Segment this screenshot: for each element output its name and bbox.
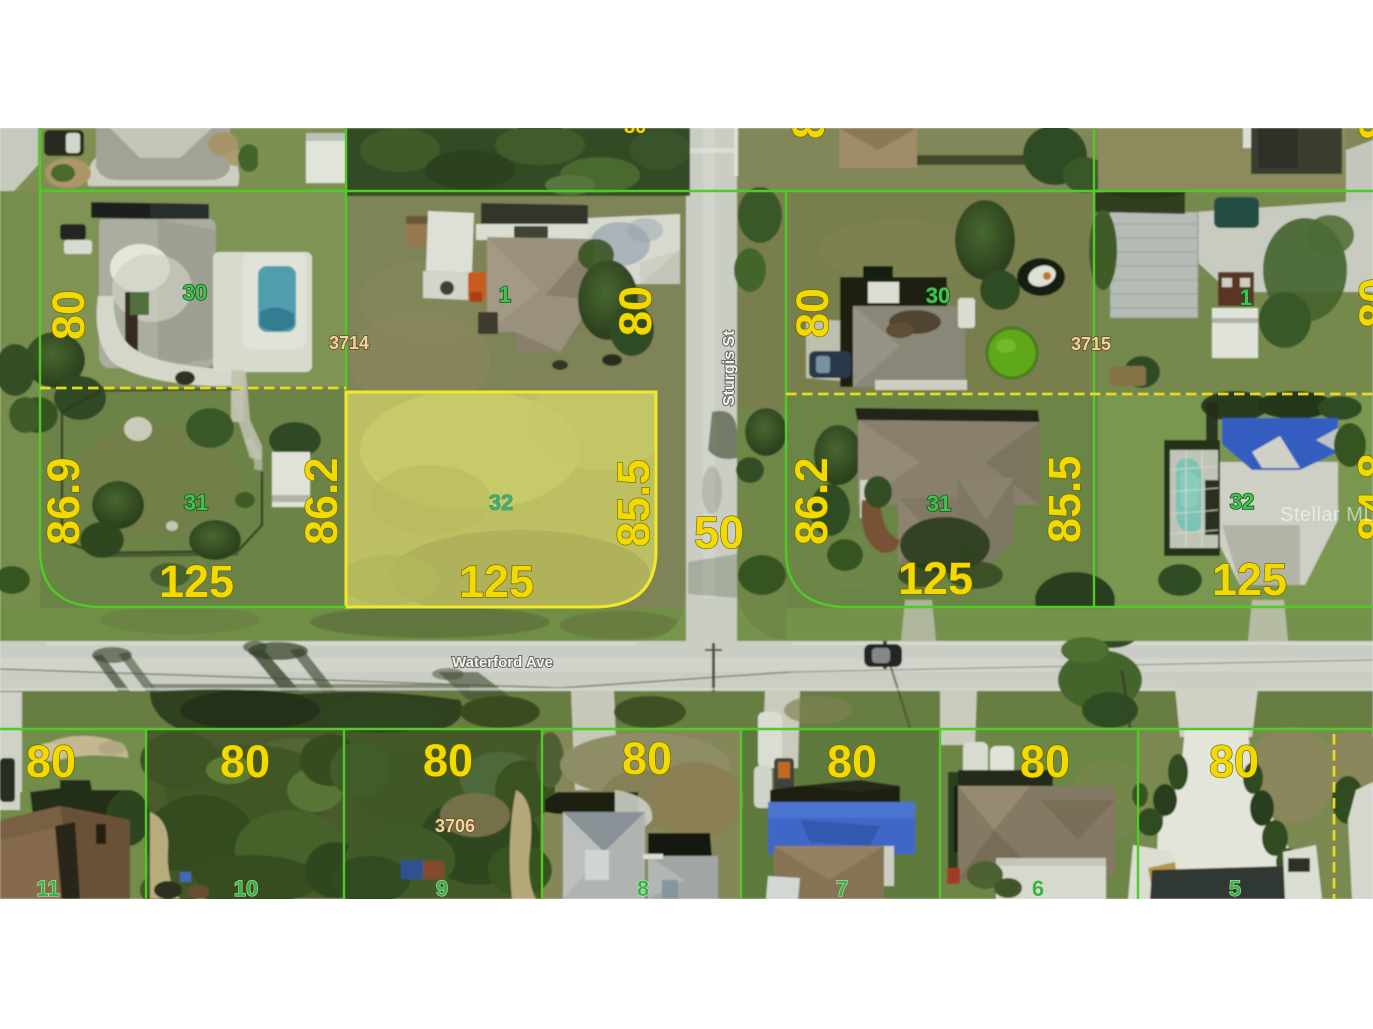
svg-text:1: 1 xyxy=(499,282,511,307)
svg-text:3706: 3706 xyxy=(435,816,475,836)
svg-text:7: 7 xyxy=(836,876,848,901)
svg-text:80: 80 xyxy=(827,736,877,787)
svg-text:80: 80 xyxy=(26,736,76,787)
svg-text:11: 11 xyxy=(36,876,59,901)
svg-text:80: 80 xyxy=(423,735,473,786)
svg-text:80: 80 xyxy=(622,733,672,784)
svg-text:9: 9 xyxy=(436,876,448,901)
svg-text:125: 125 xyxy=(459,556,534,607)
svg-text:6: 6 xyxy=(1032,876,1044,901)
svg-text:80: 80 xyxy=(1209,736,1259,787)
svg-text:50: 50 xyxy=(694,507,744,558)
svg-text:125: 125 xyxy=(159,556,234,607)
svg-text:80: 80 xyxy=(1350,278,1373,328)
svg-text:32: 32 xyxy=(1230,489,1254,514)
svg-text:Waterford Ave: Waterford Ave xyxy=(452,654,553,671)
svg-text:84.8: 84.8 xyxy=(1349,453,1373,541)
svg-text:30: 30 xyxy=(926,283,950,308)
svg-text:1: 1 xyxy=(1240,285,1252,310)
svg-text:8: 8 xyxy=(637,876,649,901)
svg-text:80: 80 xyxy=(1020,736,1070,787)
svg-text:30: 30 xyxy=(183,280,207,305)
svg-text:80: 80 xyxy=(43,290,94,340)
svg-text:5: 5 xyxy=(1229,876,1241,901)
svg-text:80: 80 xyxy=(787,288,838,338)
svg-text:31: 31 xyxy=(184,490,208,515)
svg-text:3714: 3714 xyxy=(329,333,369,353)
svg-text:80: 80 xyxy=(220,736,270,787)
svg-text:3715: 3715 xyxy=(1071,334,1111,354)
svg-text:86.2: 86.2 xyxy=(296,457,347,545)
svg-text:125: 125 xyxy=(898,553,973,604)
svg-text:Sturgis St: Sturgis St xyxy=(721,330,738,406)
svg-text:85.5: 85.5 xyxy=(1039,455,1090,543)
svg-text:31: 31 xyxy=(927,491,951,516)
svg-text:86.9: 86.9 xyxy=(38,457,89,545)
svg-text:32: 32 xyxy=(489,490,513,515)
svg-text:10: 10 xyxy=(234,876,258,901)
svg-text:125: 125 xyxy=(1212,554,1287,605)
svg-text:86.2: 86.2 xyxy=(786,457,837,545)
svg-text:80: 80 xyxy=(610,286,661,336)
svg-text:85.5: 85.5 xyxy=(608,459,659,547)
svg-text:Stellar MLS: Stellar MLS xyxy=(1280,504,1373,526)
